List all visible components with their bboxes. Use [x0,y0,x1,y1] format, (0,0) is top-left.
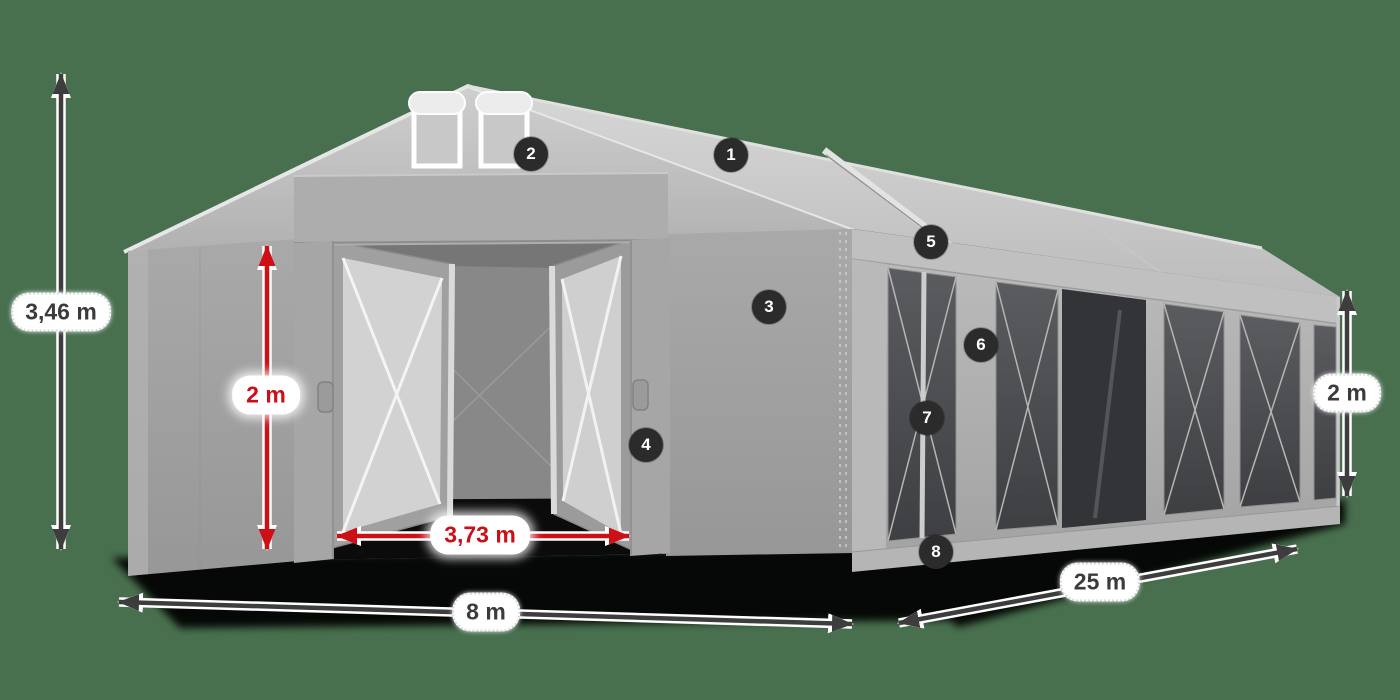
door-handle-left [318,382,333,412]
entrance-column-left [294,241,334,563]
length-label: 25 m [1060,563,1140,602]
inner-doorway [448,266,560,514]
callout-badge-4[interactable]: 4 [629,428,663,462]
side-height-label: 2 m [1313,374,1381,413]
entrance-lintel [294,173,668,246]
side-window-5 [1314,325,1336,500]
callout-badge-1[interactable]: 1 [714,138,748,172]
front-wall-right [666,229,852,556]
side-window-2 [996,282,1058,530]
callout-badge-5[interactable]: 5 [914,225,948,259]
entrance-height-label: 2 m [232,376,300,415]
door-handle-right [633,380,648,410]
front-left-corner [128,249,148,576]
tent-diagram-stage: 3,46 m 2 m 3,73 m 8 m 25 m 2 m 1 2 3 4 5… [0,0,1400,700]
callout-badge-6[interactable]: 6 [964,328,998,362]
width-label: 8 m [452,593,520,632]
door-leaf-left [332,241,452,548]
side-corner-pillar [852,259,886,552]
door-pole-right [552,266,554,514]
callout-badge-8[interactable]: 8 [919,535,953,569]
side-module-opening [1062,289,1146,528]
tent-illustration [0,0,1400,700]
entrance-width-label: 3,73 m [430,516,530,555]
callout-badge-7[interactable]: 7 [910,401,944,435]
callout-badge-3[interactable]: 3 [752,290,786,324]
door-leaf-right [552,239,632,550]
door-pole-left [450,264,452,516]
total-height-label: 3,46 m [11,293,111,332]
side-window-4 [1240,315,1300,507]
callout-badge-2[interactable]: 2 [514,137,548,171]
side-window-3 [1164,304,1224,515]
entrance-column-right [630,238,670,556]
